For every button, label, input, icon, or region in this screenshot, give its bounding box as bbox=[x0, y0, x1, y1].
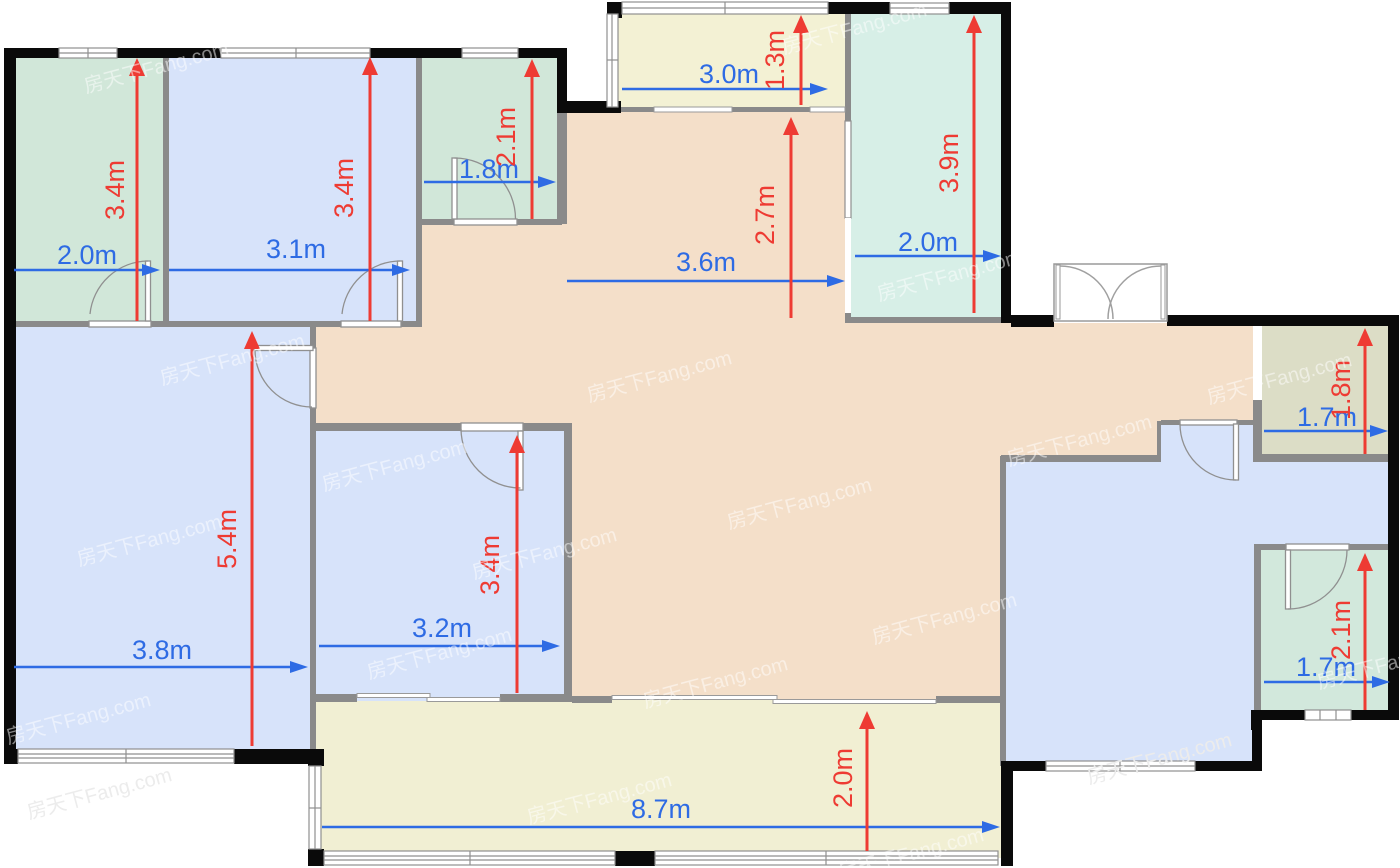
svg-text:3.1m: 3.1m bbox=[266, 234, 326, 264]
svg-text:2.0m: 2.0m bbox=[898, 227, 958, 257]
svg-text:2.0m: 2.0m bbox=[57, 240, 117, 270]
svg-text:3.6m: 3.6m bbox=[676, 247, 736, 277]
svg-text:3.8m: 3.8m bbox=[132, 635, 192, 665]
svg-text:2.1m: 2.1m bbox=[1326, 600, 1356, 660]
svg-text:3.9m: 3.9m bbox=[934, 133, 964, 193]
svg-text:2.1m: 2.1m bbox=[491, 107, 521, 167]
svg-text:2.0m: 2.0m bbox=[828, 748, 858, 808]
svg-text:3.4m: 3.4m bbox=[329, 158, 359, 218]
svg-text:3.4m: 3.4m bbox=[100, 160, 130, 220]
svg-text:2.7m: 2.7m bbox=[750, 185, 780, 245]
svg-text:3.0m: 3.0m bbox=[699, 59, 759, 89]
